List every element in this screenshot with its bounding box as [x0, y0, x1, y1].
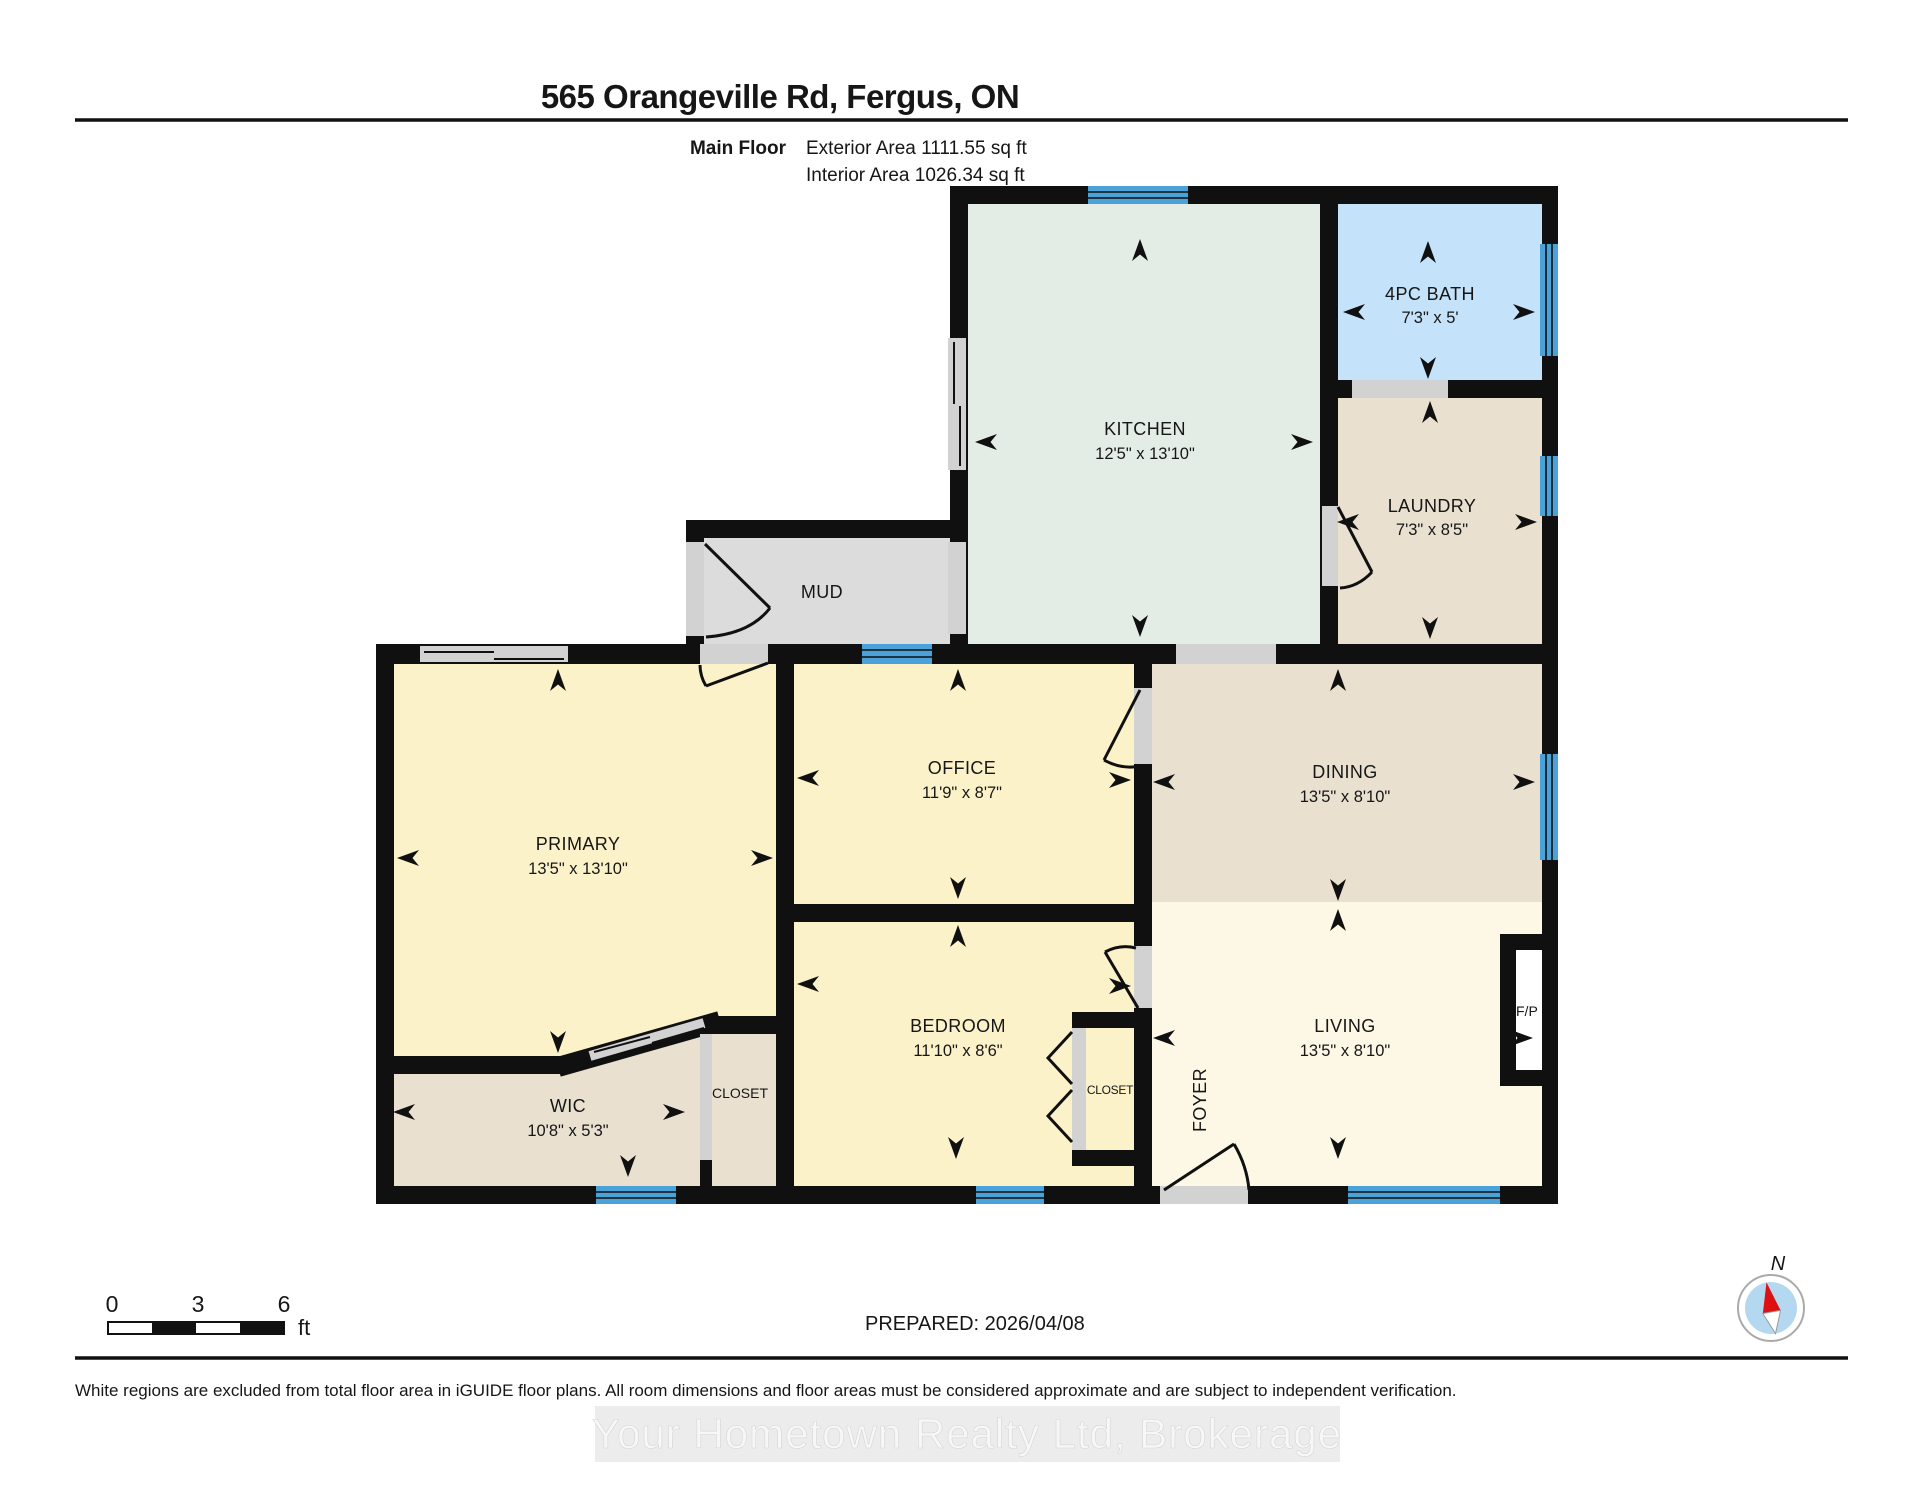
room-floors	[394, 204, 1542, 1186]
kitchen-dims: 12'5" x 13'10"	[1095, 445, 1195, 463]
scale-tick-6: 6	[278, 1291, 291, 1317]
floor-plan-canvas: 565 Orangeville Rd, Fergus, ON Main Floo…	[0, 0, 1920, 1483]
scale-tick-0: 0	[106, 1291, 119, 1317]
closet-primary-floor	[712, 1034, 776, 1186]
wall-closet-bedroom-bottom	[1072, 1150, 1134, 1166]
wic-label: WIC	[550, 1096, 586, 1116]
kitchen-top-window	[1088, 186, 1188, 204]
dining-floor	[1152, 664, 1542, 902]
exterior-area: Exterior Area 1111.55 sq ft	[806, 138, 1027, 159]
fireplace-label: F/P	[1516, 1003, 1538, 1019]
scale-tick-3: 3	[192, 1291, 205, 1317]
wic-bottom-window	[596, 1186, 676, 1204]
office-label: OFFICE	[928, 758, 996, 778]
front-door-opening	[1160, 1186, 1248, 1204]
wic-closet-opening	[700, 1034, 712, 1160]
bath-label: 4PC BATH	[1385, 284, 1475, 304]
closet-bedroom-label: CLOSET	[1087, 1083, 1134, 1097]
primary-dims: 13'5" x 13'10"	[528, 860, 628, 878]
foyer-label: FOYER	[1190, 1068, 1210, 1132]
living-bottom-window	[1348, 1186, 1500, 1204]
kitchen-label: KITCHEN	[1104, 419, 1186, 439]
wic-dims: 10'8" x 5'3"	[527, 1122, 608, 1140]
wall-closet-bedroom-top	[1072, 1012, 1134, 1028]
disclaimer-text: White regions are excluded from total fl…	[75, 1381, 1457, 1400]
bedroom-bottom-window	[976, 1186, 1044, 1204]
bath-laundry-opening	[1352, 380, 1448, 398]
laundry-right-window	[1540, 456, 1558, 516]
wall-primary-wic	[394, 1056, 566, 1074]
watermark-text: Your Hometown Realty Ltd, Brokerage	[592, 1410, 1342, 1457]
floor-label: Main Floor	[690, 138, 787, 159]
wall-wic-closet-stub	[700, 1160, 712, 1186]
compass-north-label: N	[1771, 1253, 1786, 1275]
bedroom-label: BEDROOM	[910, 1016, 1006, 1036]
wall-closet-primary-top	[712, 1016, 776, 1034]
laundry-dims: 7'3" x 8'5"	[1396, 521, 1468, 539]
living-dims: 13'5" x 8'10"	[1300, 1042, 1391, 1060]
scale-bar-segment	[240, 1322, 284, 1334]
mud-exterior-door-opening	[686, 542, 704, 636]
kitchen-laundry-door-opening	[1322, 506, 1338, 586]
mud-bottom-window	[862, 644, 932, 664]
prepared-date: PREPARED: 2026/04/08	[865, 1313, 1085, 1335]
scale-unit: ft	[298, 1315, 310, 1340]
dining-dims: 13'5" x 8'10"	[1300, 788, 1391, 806]
floor-plan-page: 565 Orangeville Rd, Fergus, ON Main Floo…	[0, 0, 1920, 1483]
kitchen-dining-opening	[1176, 644, 1276, 664]
living-label: LIVING	[1314, 1016, 1375, 1036]
wall-primary-office	[776, 664, 794, 1186]
office-dims: 11'9" x 8'7"	[922, 784, 1002, 802]
mud-label: MUD	[801, 582, 843, 602]
compass: N	[1738, 1253, 1804, 1341]
bath-right-window	[1540, 244, 1558, 356]
scale-bar-segment	[152, 1322, 196, 1334]
wall-office-bedroom	[794, 904, 1134, 922]
bath-dims: 7'3" x 5'	[1401, 309, 1458, 327]
mud-primary-door-opening	[700, 644, 768, 664]
closet-primary-label: CLOSET	[712, 1085, 768, 1101]
laundry-label: LAUNDRY	[1388, 496, 1477, 516]
watermark: Your Hometown Realty Ltd, Brokerage	[592, 1406, 1342, 1462]
kitchen-mud-opening	[948, 542, 966, 634]
bedroom-dims: 11'10" x 8'6"	[913, 1042, 1002, 1060]
page-title: 565 Orangeville Rd, Fergus, ON	[541, 78, 1019, 115]
kitchen-left-slider-window	[948, 338, 966, 470]
primary-top-slider-window	[420, 646, 568, 662]
dining-right-window	[1540, 754, 1558, 860]
interior-area: Interior Area 1026.34 sq ft	[806, 165, 1025, 186]
dining-label: DINING	[1312, 762, 1377, 782]
bedroom-closet-opening	[1072, 1028, 1086, 1150]
scale-bar: 0 3 6 ft	[106, 1291, 311, 1340]
bedroom-living-door-opening	[1134, 946, 1152, 1008]
primary-label: PRIMARY	[536, 834, 621, 854]
